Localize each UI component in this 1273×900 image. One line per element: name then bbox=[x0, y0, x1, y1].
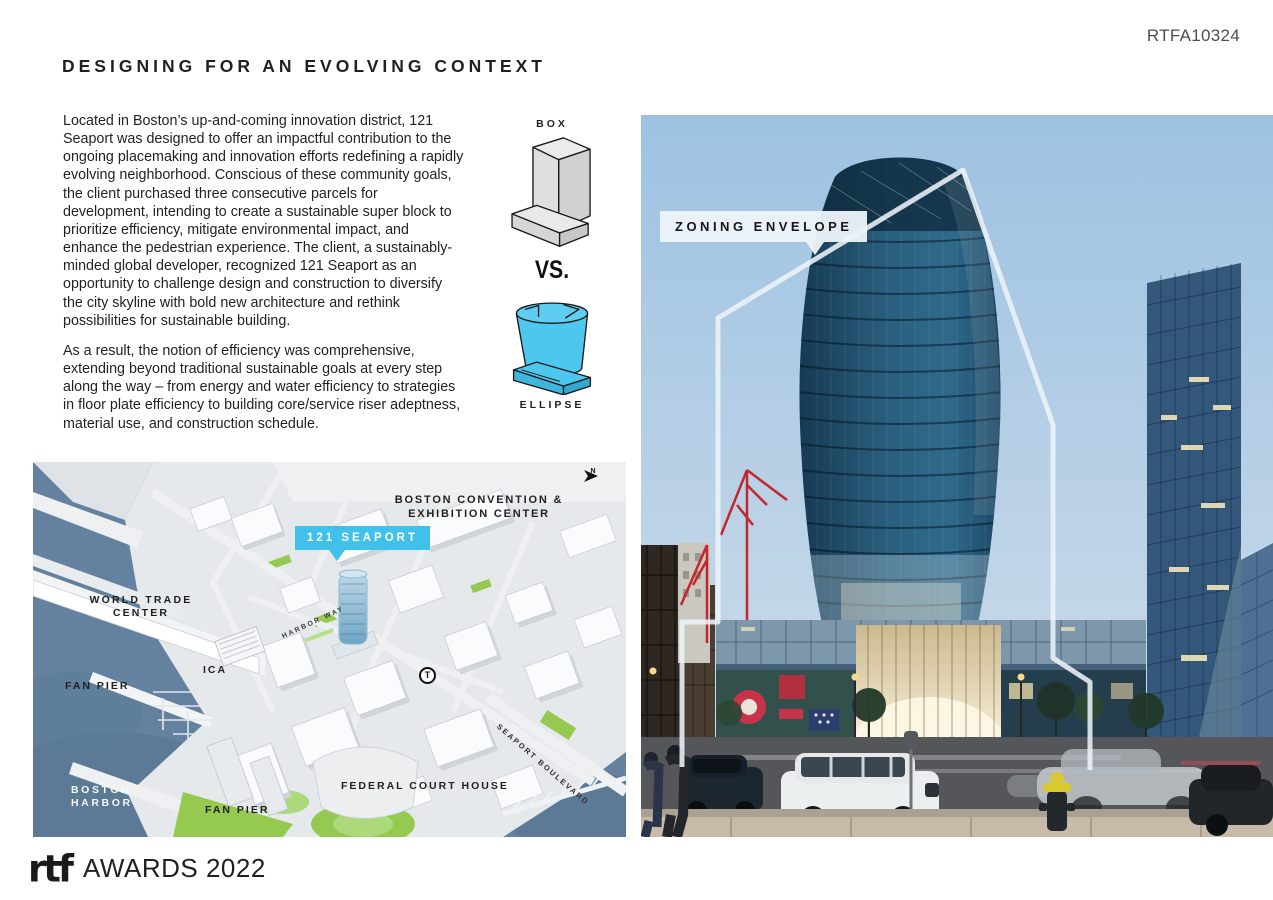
map-badge-121-seaport: 121 SEAPORT bbox=[295, 526, 430, 550]
intro-text: Located in Boston’s up-and-coming innova… bbox=[63, 112, 465, 445]
footer: rtf AWARDS 2022 bbox=[28, 846, 266, 890]
sidewalk bbox=[641, 809, 1273, 837]
map-label-convention-center: BOSTON CONVENTION & EXHIBITION CENTER bbox=[369, 494, 589, 522]
box-massing-icon bbox=[504, 134, 600, 252]
map-label-ica: ICA bbox=[203, 664, 227, 677]
ellipse-massing-icon bbox=[504, 289, 600, 395]
versus-label: VS. bbox=[503, 256, 602, 285]
massing-diagram: BOX VS. ELLIPSE bbox=[494, 118, 610, 411]
map-label-federal-court-house: FEDERAL COURT HOUSE bbox=[341, 780, 509, 793]
north-arrow: N bbox=[582, 468, 604, 475]
box-label: BOX bbox=[494, 118, 610, 130]
map-label-fan-pier-lower: FAN PIER bbox=[205, 804, 269, 817]
page-title: DESIGNING FOR AN EVOLVING CONTEXT bbox=[62, 56, 546, 77]
paragraph-1: Located in Boston’s up-and-coming innova… bbox=[63, 112, 465, 330]
ellipse-label: ELLIPSE bbox=[494, 399, 610, 411]
zoning-envelope-callout: ZONING ENVELOPE bbox=[660, 211, 867, 242]
zoning-envelope-label: ZONING ENVELOPE bbox=[675, 219, 852, 234]
awards-text: AWARDS 2022 bbox=[83, 853, 266, 884]
map-label-boston-harbor: BOSTON HARBOR bbox=[71, 784, 133, 810]
rtf-logo: rtf bbox=[28, 849, 71, 887]
map-label-fan-pier-upper: FAN PIER bbox=[65, 680, 129, 693]
north-arrow-icon bbox=[582, 468, 600, 484]
callout-pointer-icon bbox=[806, 242, 824, 255]
site-map: N BOSTON CONVENTION & EXHIBITION CENTER … bbox=[33, 462, 626, 837]
presentation-board: RTFA10324 DESIGNING FOR AN EVOLVING CONT… bbox=[0, 0, 1273, 900]
transit-t-icon: T bbox=[419, 667, 436, 684]
building-photo: ZONING ENVELOPE bbox=[641, 115, 1273, 837]
reference-code: RTFA10324 bbox=[1147, 26, 1240, 46]
paragraph-2: As a result, the notion of efficiency wa… bbox=[63, 342, 465, 433]
badge-pointer-icon bbox=[329, 550, 345, 561]
map-label-world-trade-center: WORLD TRADE CENTER bbox=[61, 594, 221, 620]
